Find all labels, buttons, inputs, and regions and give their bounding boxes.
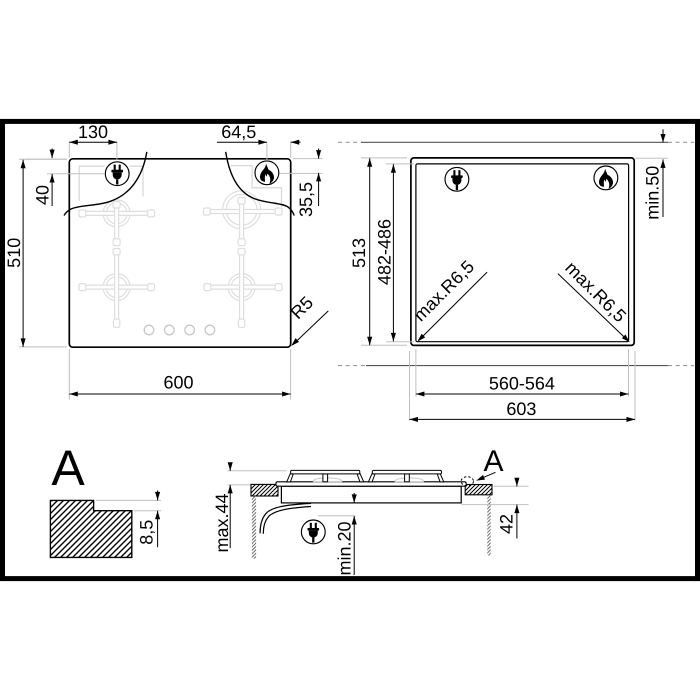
svg-text:35,5: 35,5 (296, 182, 316, 217)
svg-text:64,5: 64,5 (221, 122, 256, 142)
svg-text:max.44: max.44 (212, 493, 232, 552)
svg-text:A: A (51, 440, 85, 496)
svg-text:513: 513 (349, 238, 369, 268)
svg-text:8,5: 8,5 (136, 520, 156, 545)
svg-text:42: 42 (497, 514, 517, 534)
svg-text:130: 130 (78, 122, 108, 142)
svg-text:560-564: 560-564 (489, 373, 555, 393)
svg-text:600: 600 (163, 373, 193, 393)
svg-text:603: 603 (506, 399, 536, 419)
svg-text:482-486: 482-486 (374, 219, 394, 285)
svg-text:min.50: min.50 (643, 166, 663, 220)
svg-text:510: 510 (4, 238, 24, 268)
svg-text:min.20: min.20 (334, 521, 354, 575)
svg-text:40: 40 (32, 185, 52, 205)
